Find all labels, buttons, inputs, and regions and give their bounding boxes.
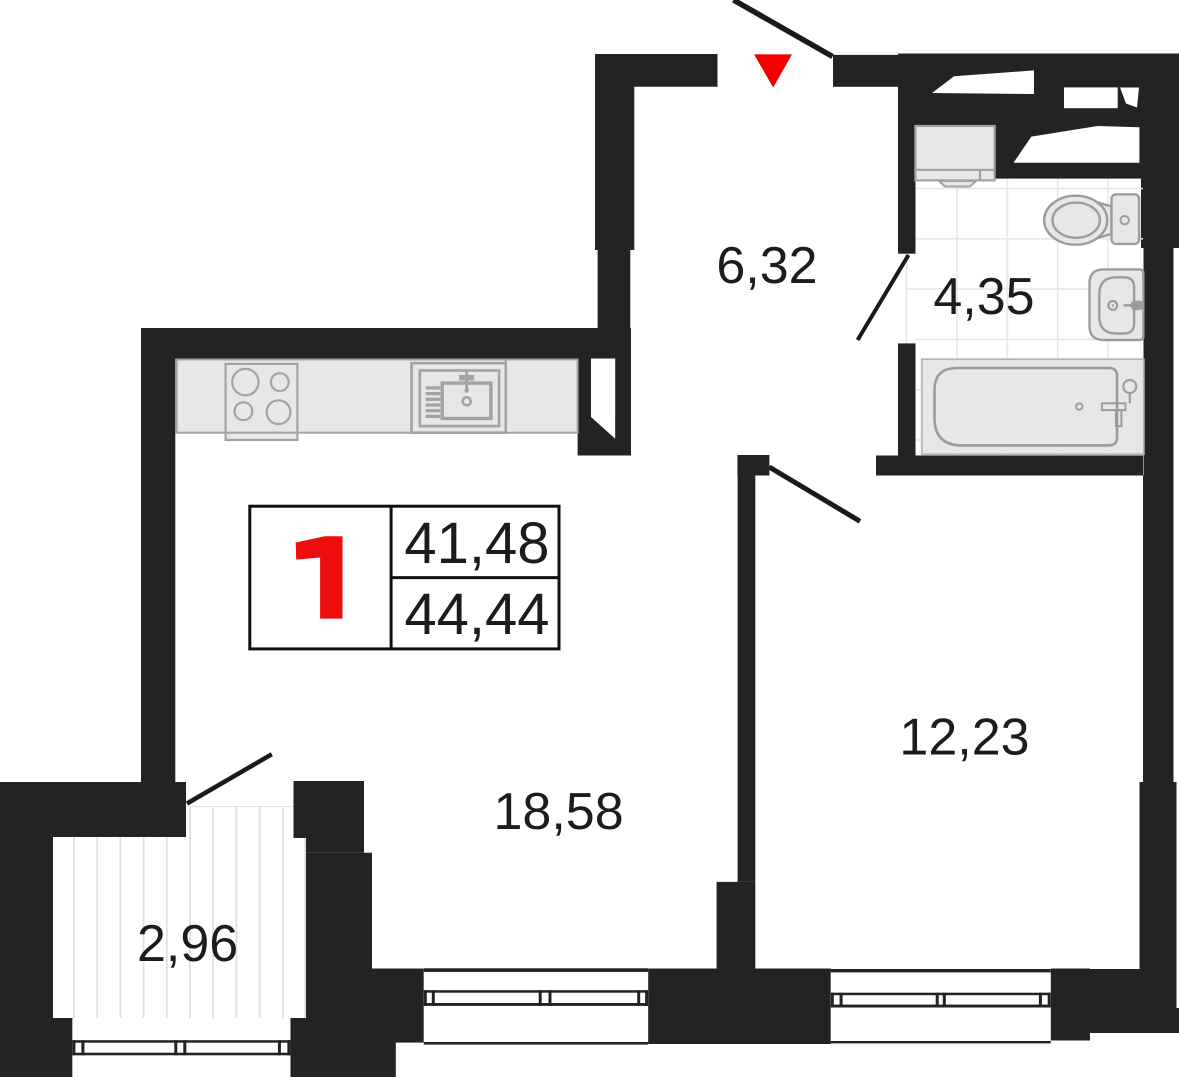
svg-text:6,32: 6,32 (716, 237, 817, 295)
svg-text:41,48: 41,48 (404, 511, 549, 576)
svg-text:18,58: 18,58 (494, 783, 624, 841)
svg-text:4,35: 4,35 (933, 268, 1034, 326)
svg-text:2,96: 2,96 (137, 915, 238, 973)
svg-text:44,44: 44,44 (404, 582, 549, 647)
svg-text:12,23: 12,23 (899, 708, 1029, 766)
